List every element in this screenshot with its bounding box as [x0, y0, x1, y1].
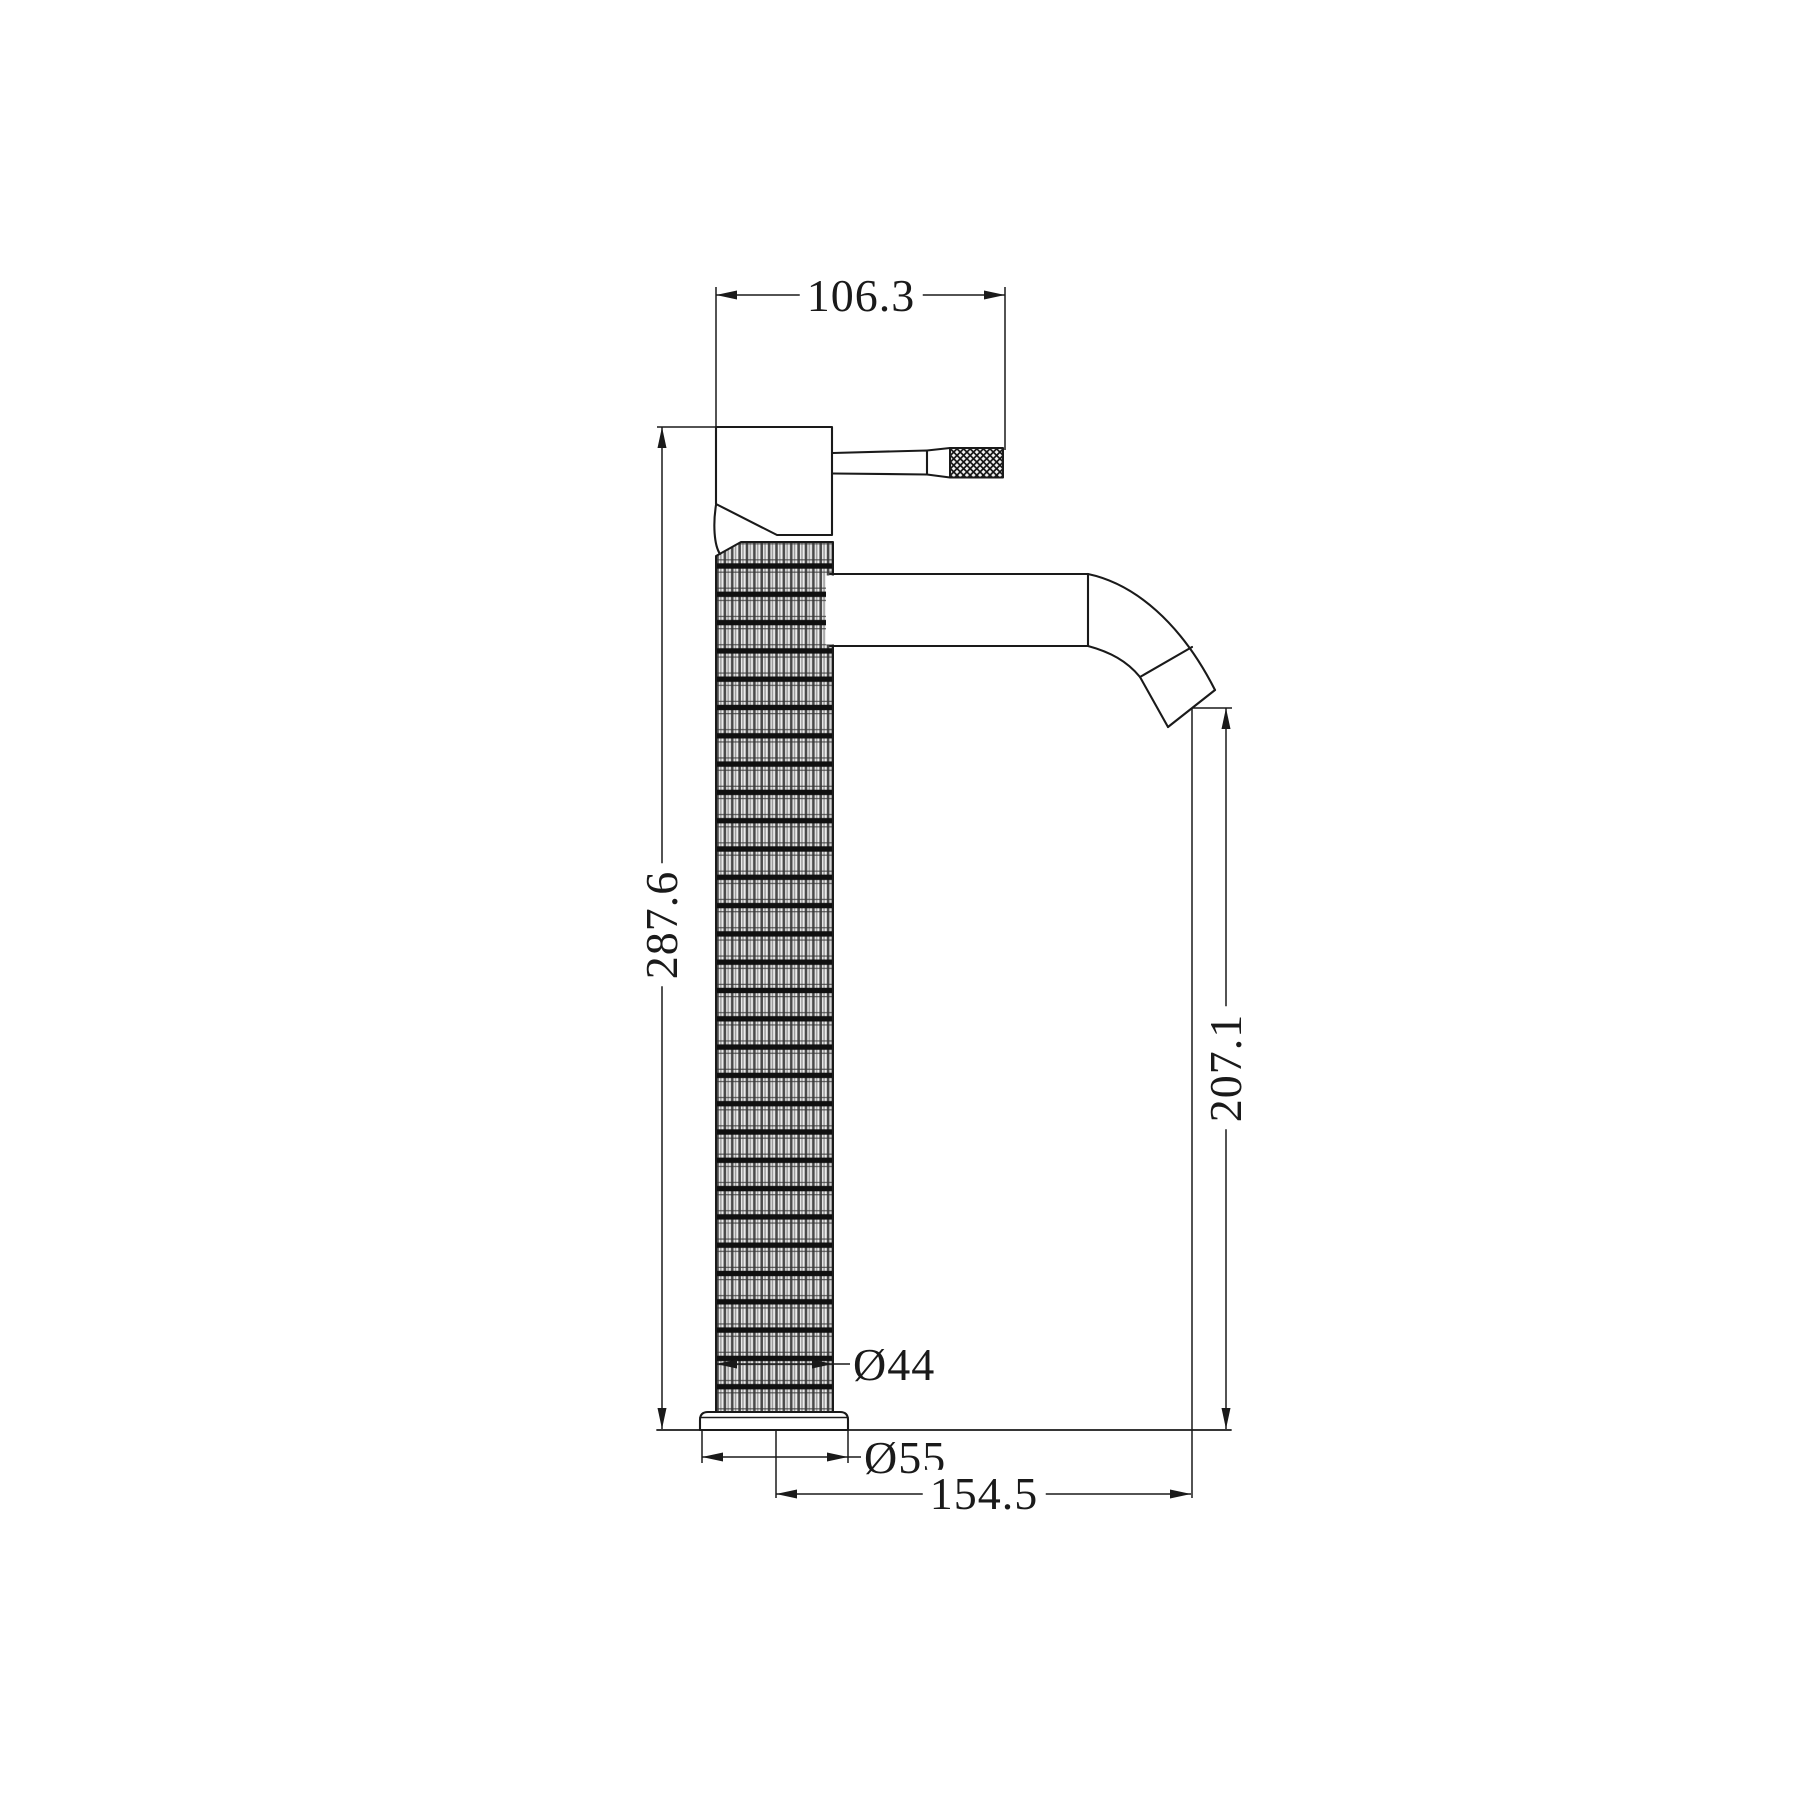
drawing-canvas: 106.3 287.6 207.1 Ø44 Ø55 154.5	[0, 0, 1800, 1800]
faucet-body	[716, 427, 832, 535]
arrowhead	[658, 1408, 667, 1429]
handle-knurl-grip	[950, 448, 1003, 478]
dim-label-body-diameter: Ø44	[853, 1341, 935, 1389]
arrowhead	[827, 1453, 848, 1462]
body-neck-arc	[714, 505, 720, 554]
dim-label-outlet-height: 207.1	[1202, 1007, 1250, 1130]
arrowhead	[1222, 1408, 1231, 1429]
faucet-outline	[657, 427, 1231, 1430]
dim-label-spout-reach: 154.5	[923, 1470, 1046, 1518]
dim-label-overall-height: 287.6	[638, 864, 686, 987]
base-flange	[700, 1412, 848, 1430]
spout-tube-fill	[826, 576, 1088, 645]
arrowhead	[716, 291, 737, 300]
arrowhead	[776, 1490, 797, 1499]
arrowhead	[702, 1453, 723, 1462]
arrowhead	[658, 427, 667, 448]
arrowhead	[1170, 1490, 1191, 1499]
spout	[826, 574, 1215, 727]
column-knurl	[716, 542, 833, 1412]
arrowhead	[984, 291, 1005, 300]
dim-label-handle-width: 106.3	[800, 272, 923, 320]
handle-lever	[833, 448, 1003, 478]
arrowhead	[1222, 708, 1231, 729]
